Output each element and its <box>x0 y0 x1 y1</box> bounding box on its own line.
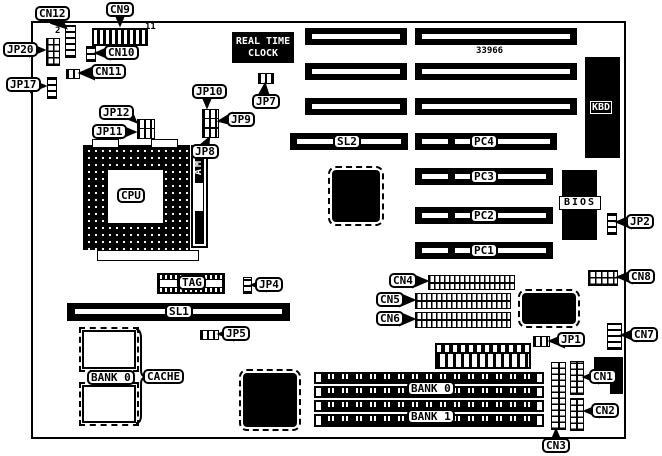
part-number: 33966 <box>476 47 503 56</box>
cache-label: CACHE <box>143 369 184 384</box>
cn8-label: CN8 <box>627 269 655 284</box>
cn2-label: CN2 <box>591 403 619 418</box>
cn7-label: CN7 <box>630 327 658 342</box>
pc4-label: PC4 <box>470 134 498 149</box>
cn12-label: CN12 <box>35 6 70 21</box>
cn1-label: CN1 <box>589 369 617 384</box>
jp7-label: JP7 <box>252 94 280 109</box>
jp11-label: JP11 <box>92 124 127 139</box>
jp20-pin2-marker: 2 <box>55 27 60 36</box>
jp2-label: JP2 <box>626 214 654 229</box>
sl2-label: SL2 <box>333 134 361 149</box>
cn5-label: CN5 <box>376 292 404 307</box>
cpu-label: CPU <box>117 188 145 203</box>
cn4-label: CN4 <box>389 273 417 288</box>
pc3-label: PC3 <box>470 169 498 184</box>
jp8-label: JP8 <box>191 144 219 159</box>
cache-bank0-label: BANK 0 <box>87 370 135 385</box>
cn6-label: CN6 <box>376 311 404 326</box>
motherboard-diagram: REAL TIME CLOCK 33966 KBD BIOS AMP <box>0 0 662 456</box>
tag-label: TAG <box>178 275 206 290</box>
jp9-label: JP9 <box>227 112 255 127</box>
cn10-label: CN10 <box>104 45 139 60</box>
jp12-label: JP12 <box>99 105 134 120</box>
sl1-label: SL1 <box>165 304 193 319</box>
jp17-label: JP17 <box>6 77 41 92</box>
cn9-pin11-marker: 11 <box>145 23 156 32</box>
jp20-label: JP20 <box>3 42 38 57</box>
pc2-label: PC2 <box>470 208 498 223</box>
cn3-label: CN3 <box>542 438 570 453</box>
jp5-label: JP5 <box>222 326 250 341</box>
jp4-label: JP4 <box>255 277 283 292</box>
jp1-label: JP1 <box>557 332 585 347</box>
pc1-label: PC1 <box>470 243 498 258</box>
jp10-label: JP10 <box>192 84 227 99</box>
simm-bank0-label: BANK 0 <box>407 381 455 396</box>
cn11-label: CN11 <box>91 64 126 79</box>
simm-bank1-label: BANK 1 <box>407 409 455 424</box>
cn9-label: CN9 <box>106 2 134 17</box>
